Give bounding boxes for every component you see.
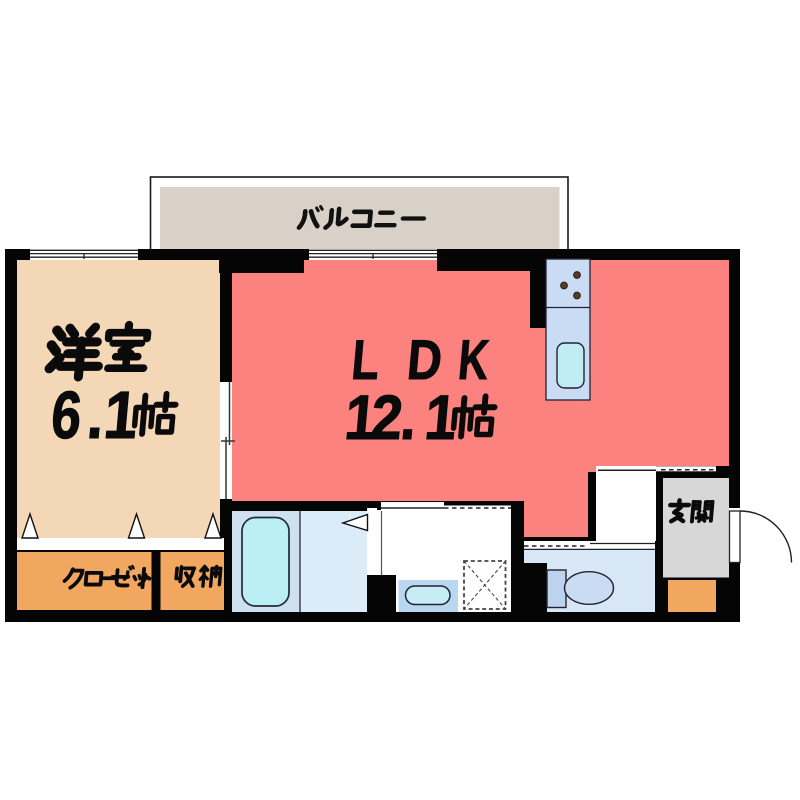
svg-text:K: K [456, 329, 492, 391]
